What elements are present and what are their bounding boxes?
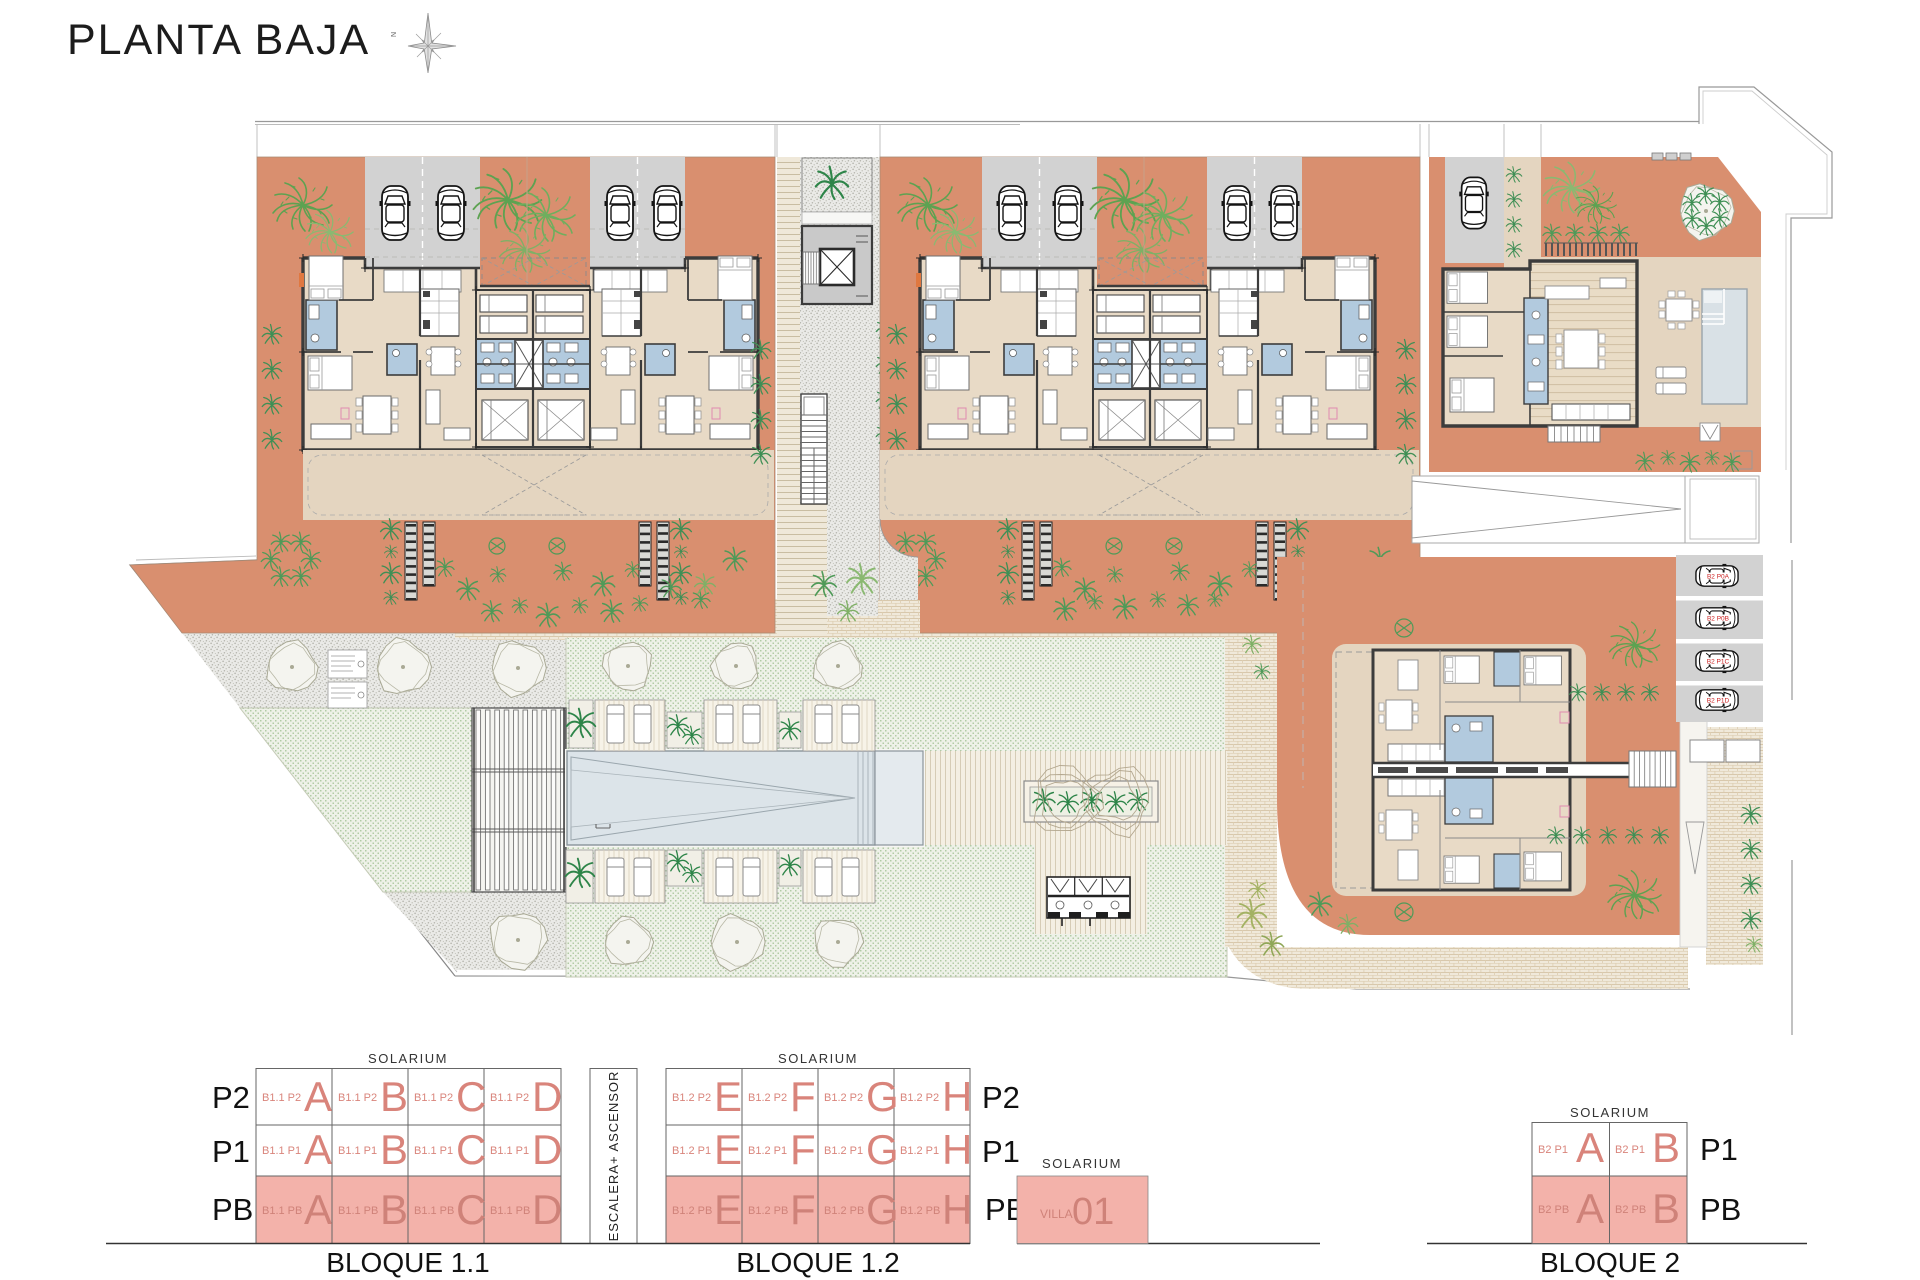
svg-text:B1.2 P2: B1.2 P2 xyxy=(672,1092,711,1104)
svg-text:E: E xyxy=(714,1073,742,1120)
svg-text:C: C xyxy=(456,1073,486,1120)
svg-text:B1.2 PB: B1.2 PB xyxy=(824,1205,864,1217)
svg-text:E: E xyxy=(714,1186,742,1233)
svg-text:PB: PB xyxy=(1700,1192,1741,1227)
svg-text:P2: P2 xyxy=(982,1080,1020,1115)
svg-text:C: C xyxy=(456,1186,486,1233)
svg-text:B1.2 PB: B1.2 PB xyxy=(748,1205,788,1217)
svg-text:P1: P1 xyxy=(212,1134,250,1169)
svg-text:B: B xyxy=(380,1186,408,1233)
svg-text:B1.2 P1: B1.2 P1 xyxy=(900,1145,939,1157)
svg-text:H: H xyxy=(942,1073,972,1120)
svg-text:A: A xyxy=(304,1126,332,1173)
svg-text:G: G xyxy=(866,1073,899,1120)
svg-text:A: A xyxy=(1576,1185,1604,1232)
svg-text:G: G xyxy=(866,1186,899,1233)
svg-text:A: A xyxy=(304,1073,332,1120)
svg-text:B1.2 P1: B1.2 P1 xyxy=(824,1145,863,1157)
svg-text:N: N xyxy=(391,32,398,37)
svg-text:SOLARIUM: SOLARIUM xyxy=(1042,1156,1122,1171)
svg-text:B1.1 P1: B1.1 P1 xyxy=(414,1145,453,1157)
svg-text:B: B xyxy=(1652,1124,1680,1171)
svg-text:H: H xyxy=(942,1186,972,1233)
svg-text:B1.1 P2: B1.1 P2 xyxy=(490,1092,529,1104)
svg-text:B1.1 P2: B1.1 P2 xyxy=(338,1092,377,1104)
svg-text:B1.2 P1: B1.2 P1 xyxy=(672,1145,711,1157)
svg-text:BLOQUE 1.1: BLOQUE 1.1 xyxy=(326,1247,489,1278)
svg-text:B1.1 PB: B1.1 PB xyxy=(338,1205,378,1217)
svg-text:D: D xyxy=(532,1073,562,1120)
svg-text:BLOQUE 1.2: BLOQUE 1.2 xyxy=(736,1247,899,1278)
svg-text:B1.1 PB: B1.1 PB xyxy=(414,1205,454,1217)
svg-text:PB: PB xyxy=(212,1192,253,1227)
svg-text:B: B xyxy=(380,1126,408,1173)
svg-text:B1.2 P2: B1.2 P2 xyxy=(748,1092,787,1104)
svg-text:B2 PB: B2 PB xyxy=(1615,1204,1646,1216)
svg-text:D: D xyxy=(532,1186,562,1233)
svg-text:B2 P1: B2 P1 xyxy=(1615,1144,1645,1156)
svg-text:B2 PB: B2 PB xyxy=(1538,1204,1569,1216)
svg-text:B: B xyxy=(1652,1185,1680,1232)
svg-text:F: F xyxy=(790,1073,816,1120)
svg-text:BLOQUE 2: BLOQUE 2 xyxy=(1540,1247,1680,1278)
svg-text:B1.2 PB: B1.2 PB xyxy=(900,1205,940,1217)
svg-text:SOLARIUM: SOLARIUM xyxy=(368,1051,448,1066)
svg-text:B1.1 P1: B1.1 P1 xyxy=(262,1145,301,1157)
svg-text:B1.1 PB: B1.1 PB xyxy=(262,1205,302,1217)
svg-text:B1.2 P2: B1.2 P2 xyxy=(824,1092,863,1104)
svg-text:F: F xyxy=(790,1186,816,1233)
svg-text:B1.1 P2: B1.1 P2 xyxy=(262,1092,301,1104)
svg-text:SOLARIUM: SOLARIUM xyxy=(778,1051,858,1066)
svg-text:P1: P1 xyxy=(982,1134,1020,1169)
svg-text:F: F xyxy=(790,1126,816,1173)
svg-text:B1.2 P1: B1.2 P1 xyxy=(748,1145,787,1157)
svg-text:B1.1 P2: B1.1 P2 xyxy=(414,1092,453,1104)
svg-text:P1: P1 xyxy=(1700,1132,1738,1167)
svg-text:B2 P1D: B2 P1D xyxy=(1707,698,1730,705)
svg-text:B2 P0B: B2 P0B xyxy=(1707,616,1729,623)
svg-text:B2 P1: B2 P1 xyxy=(1538,1144,1568,1156)
svg-text:SOLARIUM: SOLARIUM xyxy=(1570,1105,1650,1120)
svg-text:B2 P0A: B2 P0A xyxy=(1707,574,1730,581)
svg-text:P2: P2 xyxy=(212,1080,250,1115)
svg-text:A: A xyxy=(304,1186,332,1233)
svg-text:C: C xyxy=(456,1126,486,1173)
svg-text:H: H xyxy=(942,1126,972,1173)
svg-text:ESCALERA+ ASCENSOR: ESCALERA+ ASCENSOR xyxy=(606,1071,621,1242)
svg-text:G: G xyxy=(866,1126,899,1173)
svg-text:B: B xyxy=(380,1073,408,1120)
svg-text:A: A xyxy=(1576,1124,1604,1171)
svg-text:B1.1 P1: B1.1 P1 xyxy=(490,1145,529,1157)
svg-text:B1.1 P1: B1.1 P1 xyxy=(338,1145,377,1157)
svg-text:B1.2 PB: B1.2 PB xyxy=(672,1205,712,1217)
svg-text:PLANTA BAJA: PLANTA BAJA xyxy=(67,16,370,64)
svg-text:E: E xyxy=(714,1126,742,1173)
svg-text:D: D xyxy=(532,1126,562,1173)
svg-text:VILLA: VILLA xyxy=(1040,1207,1073,1221)
svg-text:B1.2 P2: B1.2 P2 xyxy=(900,1092,939,1104)
svg-text:01: 01 xyxy=(1072,1191,1114,1233)
svg-text:B1.1 PB: B1.1 PB xyxy=(490,1205,530,1217)
svg-text:B2 P1C: B2 P1C xyxy=(1707,659,1730,666)
